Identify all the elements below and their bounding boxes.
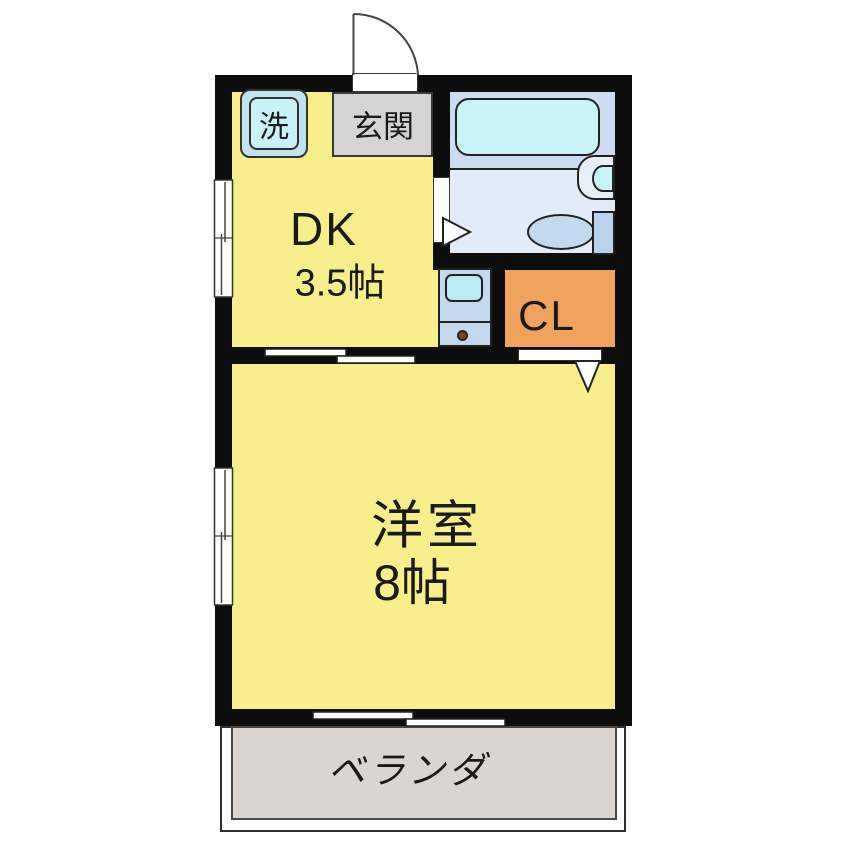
kitchen-counter-divider [438, 321, 492, 323]
floor-plan: 洗 玄関 DK 3.5帖 CL 洋室 8帖 ベランダ [0, 0, 846, 846]
kitchen-sink-icon [445, 274, 483, 302]
entrance-door-swing-icon [354, 14, 419, 75]
dk-room-size-label: 3.5帖 [295, 252, 386, 307]
wall-left [215, 75, 232, 726]
toilet-tank-icon [592, 211, 615, 255]
wall-bottom [215, 709, 632, 726]
laundry-label: 洗 [259, 102, 289, 146]
wash-basin-bowl-icon [592, 165, 614, 192]
bathtub-icon [455, 98, 600, 156]
western-room-size-label: 8帖 [373, 543, 451, 615]
dk-room-label: DK [290, 202, 358, 256]
wall-right [615, 75, 632, 726]
gas-burner-icon [457, 330, 468, 341]
closet-label: CL [518, 292, 576, 340]
toilet-bowl-icon [527, 214, 595, 250]
genkan-label: 玄関 [352, 102, 414, 147]
closet-door-opening [518, 349, 602, 361]
veranda-label: ベランダ [328, 740, 488, 794]
entrance-door-opening [352, 73, 418, 92]
bathroom-door-opening [433, 177, 450, 243]
